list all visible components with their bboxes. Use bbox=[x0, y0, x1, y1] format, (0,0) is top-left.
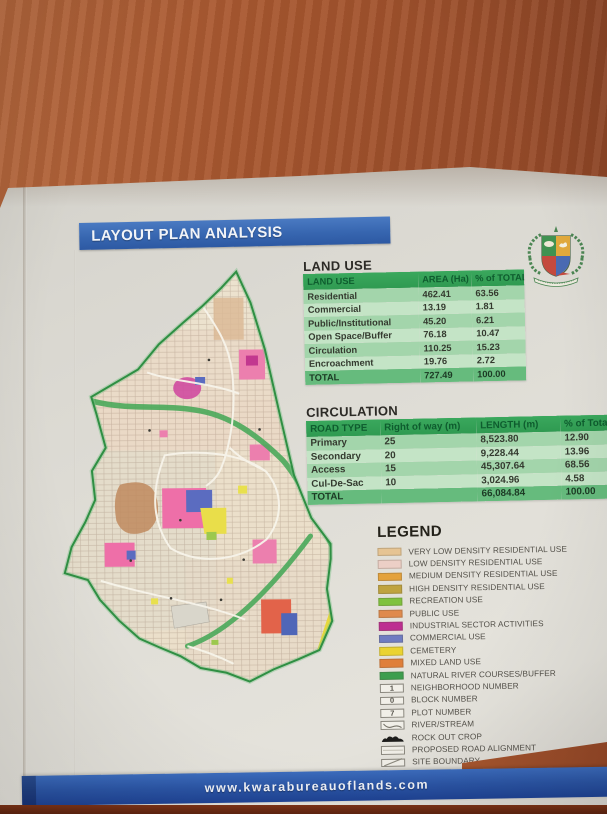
circulation-cell: 66,084.84 bbox=[477, 486, 561, 501]
circulation-table: ROAD TYPERight of way (m)LENGTH (m)% of … bbox=[306, 414, 607, 504]
circulation-cell: 68.56 bbox=[561, 457, 607, 472]
footer-band-left-edge bbox=[22, 776, 37, 808]
page-title: LAYOUT PLAN ANALYSIS bbox=[91, 224, 283, 245]
circulation-column-header: % of Total Length bbox=[560, 414, 607, 432]
very-low-density-swatch bbox=[377, 548, 401, 557]
land-use-cell: 19.76 bbox=[420, 354, 473, 369]
circulation-column-header: LENGTH (m) bbox=[476, 416, 560, 434]
plot-number-symbol: 7 bbox=[380, 709, 404, 718]
neighborhood-number-symbol: 1 bbox=[380, 684, 404, 693]
legend-item-label: HIGH DENSITY RESIDENTIAL USE bbox=[409, 582, 545, 593]
land-use-cell: 100.00 bbox=[473, 366, 526, 381]
page-fold-crease bbox=[23, 186, 27, 814]
legend-item-label: INDUSTRIAL SECTOR ACTIVITIES bbox=[410, 619, 544, 630]
legend-item-label: RIVER/STREAM bbox=[411, 719, 474, 729]
high-density-swatch bbox=[378, 585, 402, 594]
legend-item-label: PROPOSED ROAD ALIGNMENT bbox=[412, 743, 536, 754]
proposed-road-symbol bbox=[381, 746, 405, 755]
legend-item-label: NEIGHBORHOOD NUMBER bbox=[411, 682, 519, 693]
public-use-swatch bbox=[378, 609, 402, 618]
legend-item-label: ROCK OUT CROP bbox=[412, 732, 482, 742]
legend-heading: LEGEND bbox=[377, 520, 599, 541]
commercial-swatch bbox=[379, 634, 403, 643]
circulation-cell: 100.00 bbox=[561, 484, 607, 499]
legend-items: VERY LOW DENSITY RESIDENTIAL USELOW DENS… bbox=[377, 542, 603, 769]
land-use-cell: 6.21 bbox=[472, 312, 525, 327]
legend-item-label: PLOT NUMBER bbox=[411, 707, 471, 717]
land-use-cell: 10.47 bbox=[472, 326, 525, 341]
site-boundary-symbol bbox=[381, 758, 405, 767]
page-edge-shadow bbox=[0, 165, 607, 207]
industrial-swatch bbox=[379, 622, 403, 631]
land-use-column-header: AREA (Ha) bbox=[418, 270, 471, 287]
desk-shadow-strip bbox=[0, 805, 607, 814]
layout-plan-map bbox=[53, 259, 347, 702]
circulation-cell: 13.96 bbox=[561, 444, 607, 459]
medium-density-swatch bbox=[378, 572, 402, 581]
legend-item-label: MEDIUM DENSITY RESIDENTIAL USE bbox=[409, 569, 558, 581]
land-use-cell: 45.20 bbox=[419, 313, 472, 328]
land-use-cell: 63.56 bbox=[471, 285, 524, 300]
land-use-cell: 727.49 bbox=[420, 367, 473, 382]
land-use-column-header: % of TOTAL bbox=[471, 269, 524, 286]
land-use-cell: 2.72 bbox=[473, 353, 526, 368]
mixed-land-use-swatch bbox=[379, 659, 403, 668]
circulation-cell bbox=[381, 487, 477, 503]
photo-of-layout-plan-page: { "page": { "title_bar": { "label": "LAY… bbox=[0, 0, 607, 814]
river-stream-symbol bbox=[380, 721, 404, 730]
legend-item-label: NATURAL RIVER COURSES/BUFFER bbox=[411, 668, 556, 680]
river-buffer-swatch bbox=[380, 671, 404, 680]
title-bar: LAYOUT PLAN ANALYSIS bbox=[79, 216, 390, 250]
circulation-cell: 4.58 bbox=[561, 471, 607, 486]
recreation-swatch bbox=[378, 597, 402, 606]
land-use-cell: 110.25 bbox=[419, 340, 472, 355]
map-zones bbox=[53, 259, 347, 702]
circulation-cell: 12.90 bbox=[560, 430, 607, 445]
legend-item-label: PUBLIC USE bbox=[409, 608, 459, 618]
legend-item-label: VERY LOW DENSITY RESIDENTIAL USE bbox=[408, 544, 567, 556]
cemetery-swatch bbox=[379, 647, 403, 656]
land-use-cell: 15.23 bbox=[472, 339, 525, 354]
land-use-cell: 462.41 bbox=[418, 286, 471, 301]
legend-item-label: LOW DENSITY RESIDENTIAL USE bbox=[409, 557, 543, 568]
legend-item-label: RECREATION USE bbox=[409, 595, 483, 605]
document-page: LAYOUT PLAN ANALYSIS LAND USE LAND USEAR… bbox=[0, 0, 607, 814]
kwara-state-crest-logo bbox=[516, 224, 596, 294]
land-use-cell: 13.19 bbox=[419, 300, 472, 315]
footer-url: www.kwarabureauoflands.com bbox=[205, 778, 430, 796]
legend-item-label: COMMERCIAL USE bbox=[410, 633, 486, 643]
legend-item-label: MIXED LAND USE bbox=[410, 657, 481, 667]
legend-item-label: CEMETERY bbox=[410, 645, 456, 655]
land-use-cell: 76.18 bbox=[419, 327, 472, 342]
block-number-symbol: 0 bbox=[380, 696, 404, 705]
low-density-swatch bbox=[378, 560, 402, 569]
rock-outcrop-symbol bbox=[381, 733, 405, 742]
legend-item-label: BLOCK NUMBER bbox=[411, 695, 478, 705]
legend: LEGEND VERY LOW DENSITY RESIDENTIAL USEL… bbox=[377, 520, 603, 769]
footer-band: www.kwarabureauoflands.com bbox=[22, 767, 607, 806]
land-use-cell: 1.81 bbox=[472, 299, 525, 314]
